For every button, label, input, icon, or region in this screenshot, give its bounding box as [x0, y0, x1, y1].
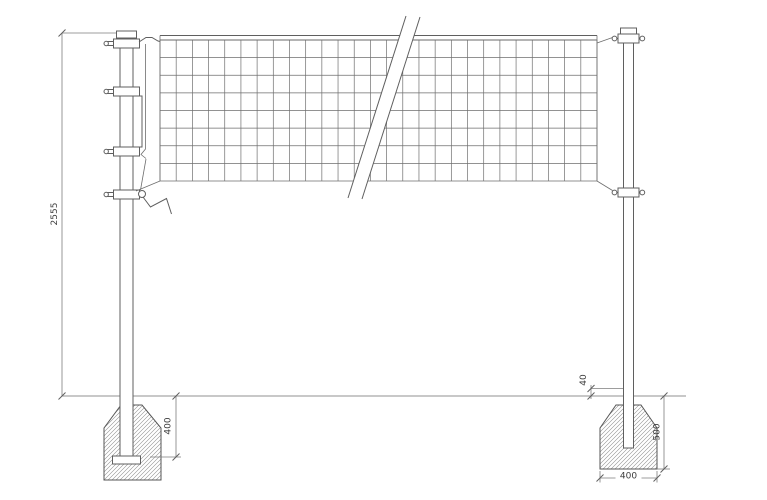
tensioner-plate [133, 96, 142, 147]
break-lines [348, 16, 420, 199]
dimension-label-foundation-width: 400 [620, 472, 637, 482]
left-post-cap [117, 31, 137, 38]
eye-ring-bottom-left [612, 190, 617, 195]
dimension-overall-height: 2555 [50, 30, 119, 400]
right-post [612, 28, 645, 448]
left-post-clamp-4 [104, 190, 140, 199]
left-post-clamp-1 [104, 39, 140, 48]
dimension-label-overall-height: 2555 [50, 203, 60, 226]
eye-ring-top-left [612, 36, 617, 41]
right-post-clamp-bottom [612, 188, 645, 197]
right-connectors [597, 38, 613, 191]
technical-drawing-canvas: 2555 [0, 0, 767, 500]
crank-handle [143, 197, 172, 214]
top-hook [139, 38, 160, 43]
dimension-foundation-width: 400 [597, 470, 661, 483]
left-post-clamp-3 [104, 147, 140, 156]
dimension-label-ground-offset: 40 [579, 374, 589, 386]
left-post-clamp-2 [104, 87, 140, 96]
dimension-label-foundation-depth: 500 [653, 423, 663, 440]
eye-ring-bottom-right [640, 190, 645, 195]
volleyball-posts-drawing: 2555 [0, 0, 767, 500]
right-post-clamp-top [612, 34, 645, 43]
eye-ring-top-right [640, 36, 645, 41]
left-post-base-plate [113, 456, 141, 464]
winch-hub [139, 191, 146, 198]
dimension-label-left-embed-depth: 400 [164, 417, 174, 434]
net-bottom-cord [136, 181, 160, 191]
net-tensioner [133, 38, 172, 215]
